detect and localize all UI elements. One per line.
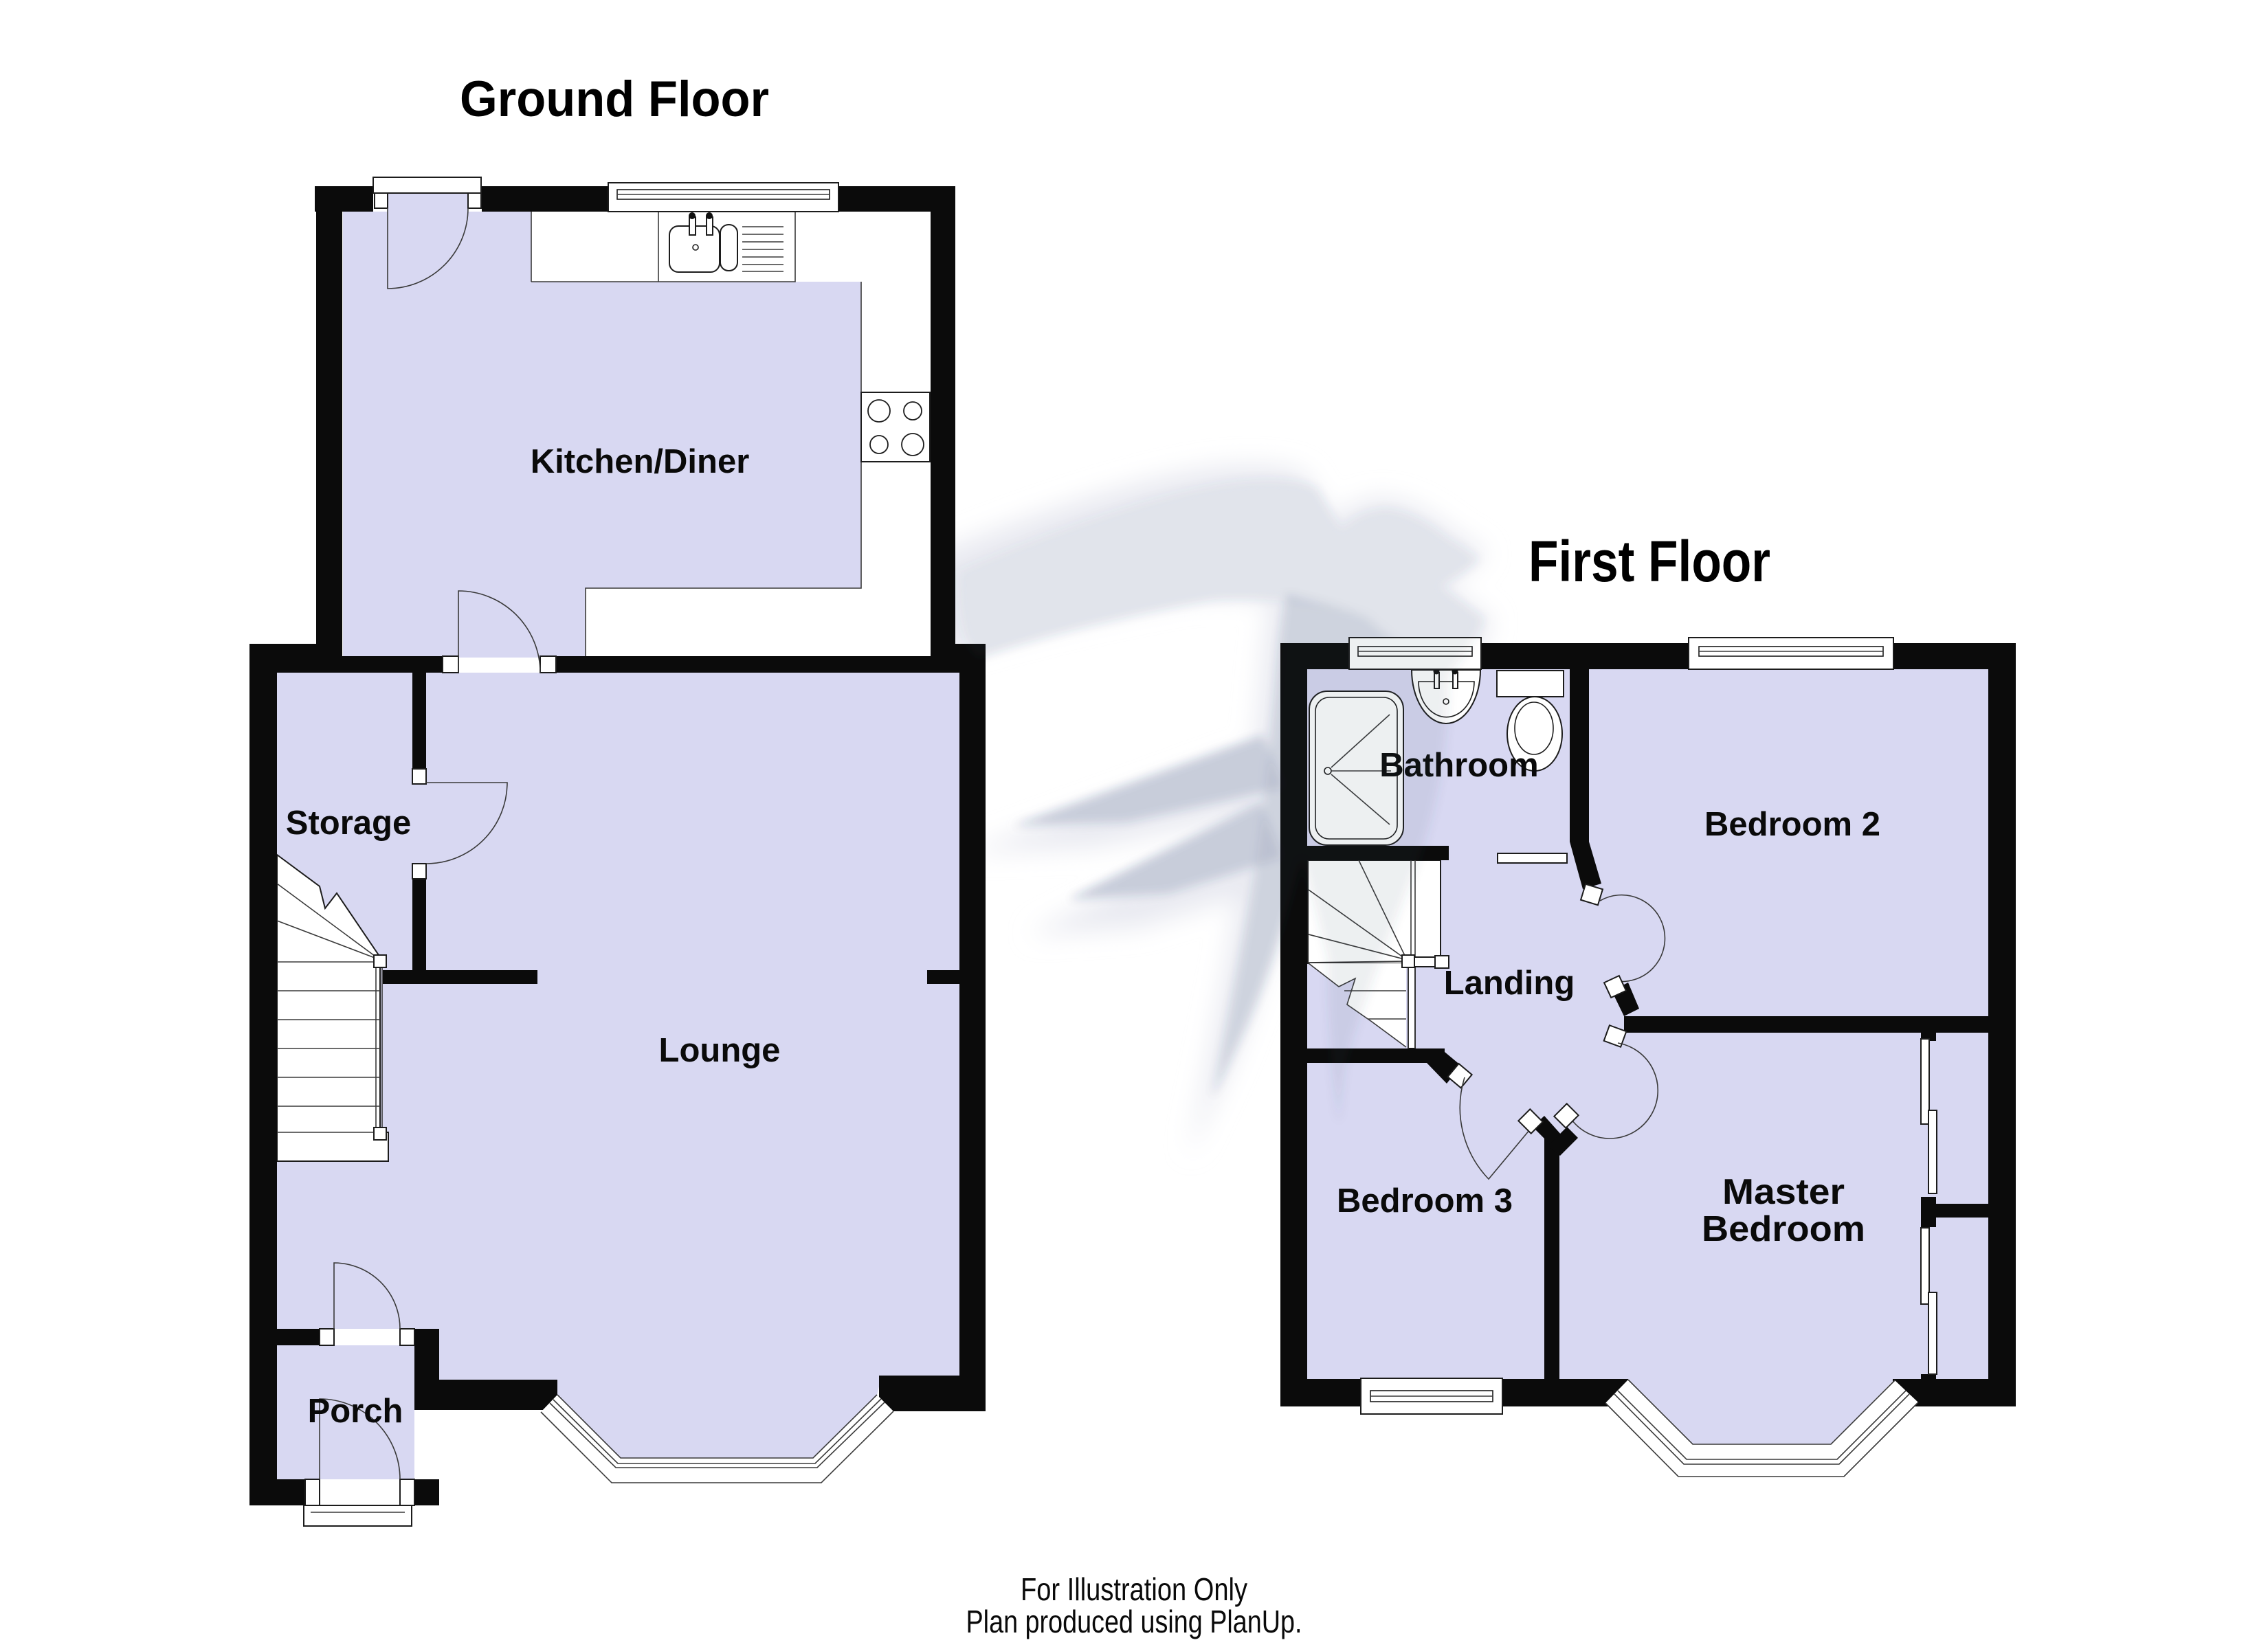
- svg-text:Bedroom 2: Bedroom 2: [1704, 806, 1880, 843]
- svg-text:Lounge: Lounge: [659, 1032, 781, 1069]
- svg-text:Bedroom: Bedroom: [1702, 1209, 1865, 1249]
- svg-text:Porch: Porch: [308, 1393, 403, 1430]
- svg-text:For Illustration Only: For Illustration Only: [1021, 1571, 1247, 1607]
- svg-text:Kitchen/Diner: Kitchen/Diner: [531, 443, 750, 480]
- svg-text:Landing: Landing: [1444, 965, 1575, 1002]
- svg-text:Storage: Storage: [286, 805, 411, 842]
- svg-text:Bedroom 3: Bedroom 3: [1337, 1182, 1513, 1220]
- svg-text:Ground Floor: Ground Floor: [460, 71, 769, 127]
- svg-text:First Floor: First Floor: [1528, 529, 1770, 594]
- svg-text:Plan produced using PlanUp.: Plan produced using PlanUp.: [966, 1604, 1302, 1639]
- svg-text:Master: Master: [1722, 1172, 1845, 1212]
